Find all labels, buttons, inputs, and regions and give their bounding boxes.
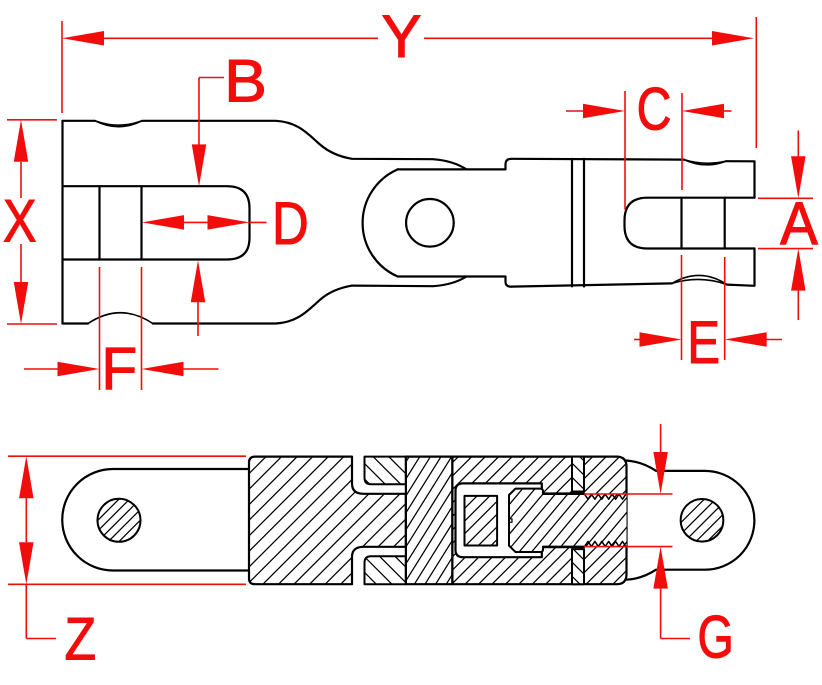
svg-text:C: C — [637, 76, 672, 143]
svg-text:B: B — [224, 48, 267, 115]
svg-text:F: F — [101, 336, 137, 403]
svg-text:Y: Y — [382, 3, 422, 70]
svg-text:G: G — [698, 604, 734, 671]
svg-text:X: X — [3, 188, 37, 255]
svg-text:Z: Z — [65, 606, 97, 673]
svg-text:E: E — [687, 309, 720, 376]
svg-text:D: D — [272, 190, 309, 257]
svg-text:A: A — [780, 190, 818, 257]
